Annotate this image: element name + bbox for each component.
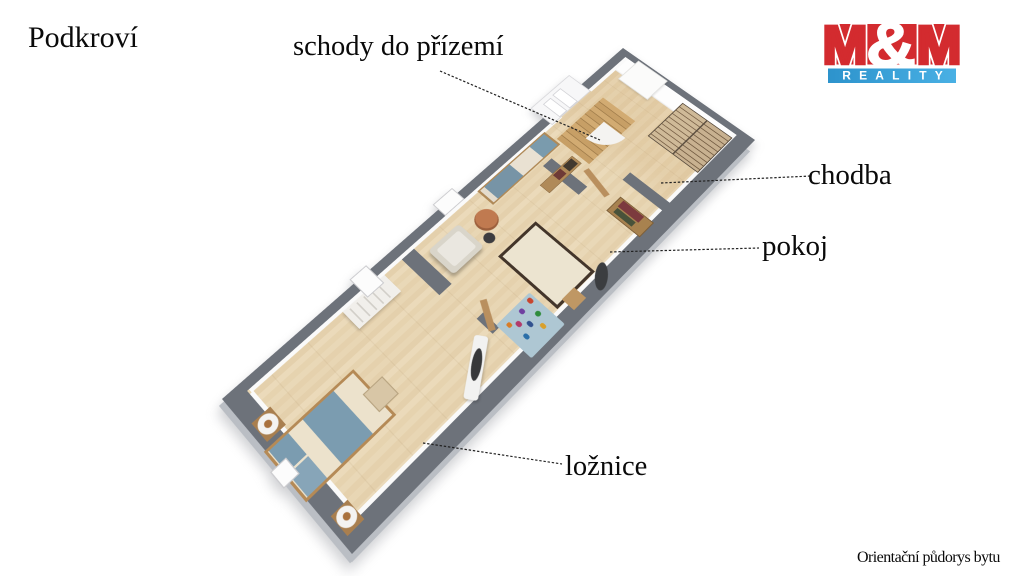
svg-text:M: M [917,20,962,76]
svg-text:REALITY: REALITY [842,69,951,83]
svg-text:M: M [824,20,867,76]
